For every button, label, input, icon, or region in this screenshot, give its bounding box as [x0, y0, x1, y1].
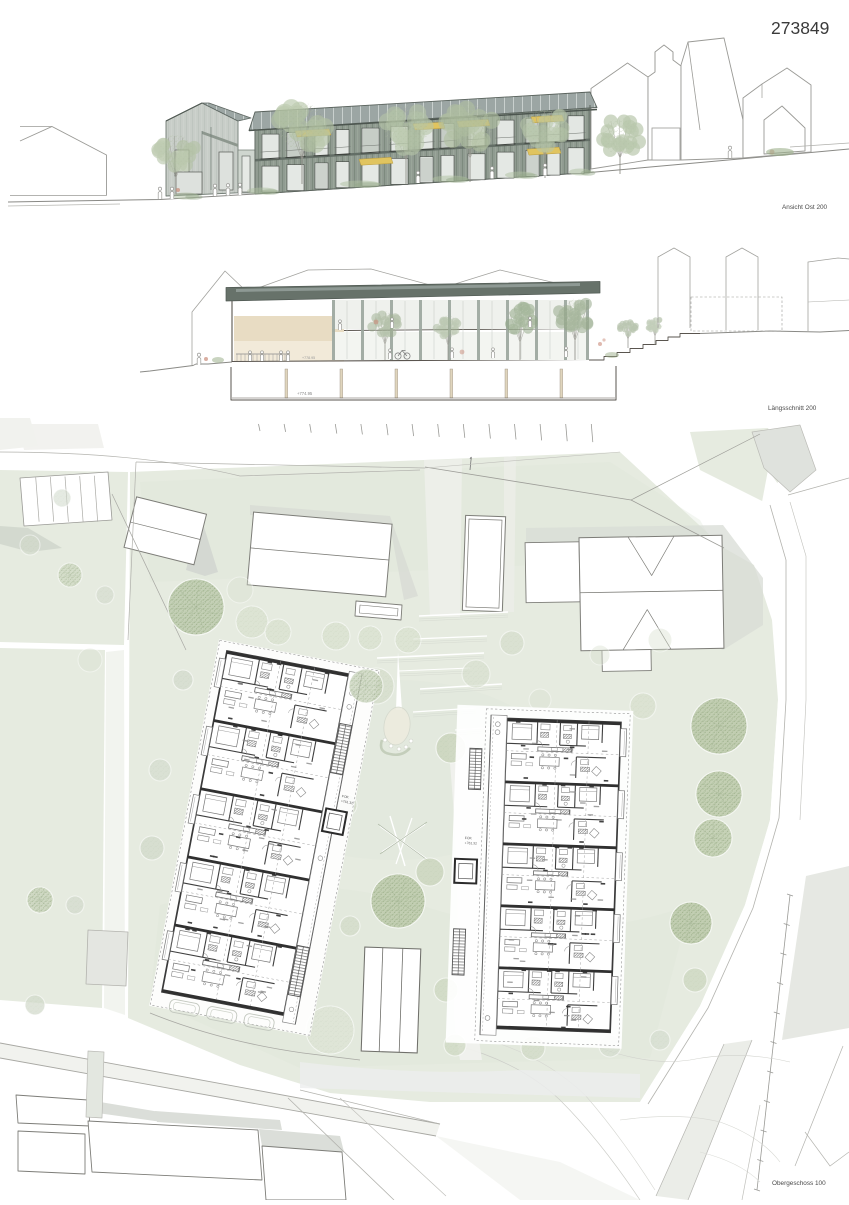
svg-text:FOK: FOK	[465, 836, 473, 840]
svg-text:+761.32: +761.32	[465, 841, 478, 845]
svg-text:+774.95: +774.95	[297, 391, 313, 396]
svg-text:Ansicht Ost 200: Ansicht Ost 200	[782, 204, 828, 211]
svg-text:273849: 273849	[771, 18, 829, 38]
svg-text:Obergeschoss 100: Obergeschoss 100	[772, 1180, 826, 1187]
svg-text:Längsschnitt 200: Längsschnitt 200	[768, 405, 817, 412]
svg-text:+778.95: +778.95	[302, 356, 315, 360]
